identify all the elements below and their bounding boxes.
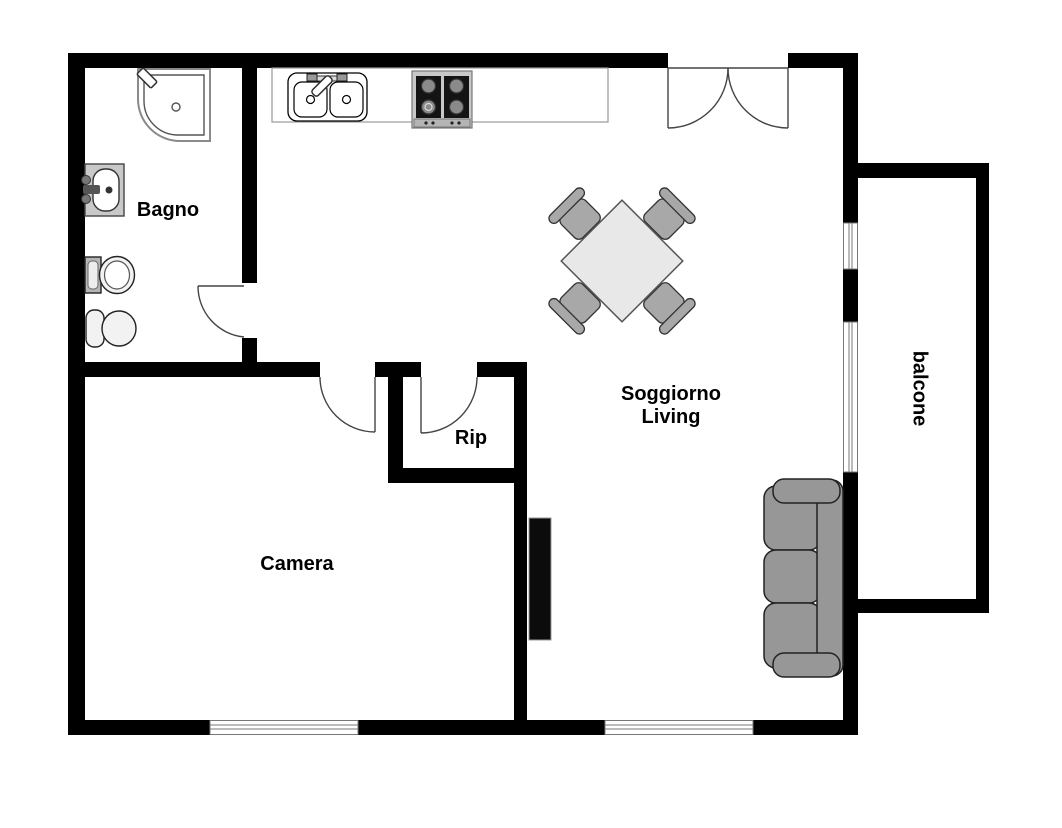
living-furniture: [529, 186, 843, 677]
soggiorno-window: [605, 721, 753, 735]
wall-rip-bottom: [388, 468, 527, 483]
burner: [422, 79, 436, 93]
balcony-window-small: [844, 223, 858, 269]
wall-top-left-segment: [68, 53, 668, 68]
bidet: [86, 310, 136, 347]
wall-balcony-top: [858, 163, 989, 178]
balcony-window-large: [844, 322, 858, 472]
burner: [450, 100, 464, 114]
sofa: [764, 479, 843, 677]
sofa-armrest: [773, 653, 840, 677]
kitchen-sink: [288, 73, 367, 121]
room-label-bagno: Bagno: [108, 199, 228, 222]
kitchen: [272, 68, 608, 128]
burner: [450, 79, 464, 93]
wall-divider: [514, 362, 527, 735]
sink-drain: [106, 187, 113, 194]
wall-left: [68, 53, 85, 735]
room-label-camera: Camera: [217, 553, 377, 576]
sofa-backrest: [817, 480, 843, 676]
faucet-handle: [307, 74, 317, 81]
sink-drain: [343, 96, 351, 104]
sofa-cushion: [764, 550, 821, 603]
faucet-knob: [82, 176, 91, 185]
room-label-soggiorno-line1: Soggiorno: [571, 383, 771, 406]
cabinet: [529, 518, 551, 640]
wall-rip-left: [388, 362, 403, 483]
stove-control-bar: [414, 119, 470, 127]
wall-bagno-camera: [68, 362, 320, 377]
wall-balcony-right: [976, 163, 989, 613]
stove-knob: [431, 121, 434, 124]
wall-balcony-bottom: [858, 599, 989, 613]
rip-door: [421, 377, 477, 433]
stove: [412, 71, 472, 128]
faucet-knob: [82, 195, 91, 204]
burner: [422, 100, 436, 114]
room-label-balcone: balcone: [908, 339, 931, 439]
wall-bathroom-lower: [242, 338, 257, 363]
shower-drain: [172, 103, 180, 111]
windows: [210, 223, 858, 735]
stove-knob: [424, 121, 427, 124]
room-label-soggiorno-line2: Living: [571, 406, 771, 429]
faucet-body: [83, 185, 100, 194]
entrance-double-door: [668, 68, 788, 128]
shower: [137, 68, 210, 141]
toilet: [85, 257, 135, 294]
camera-door: [320, 377, 375, 432]
bathroom-door: [198, 286, 244, 337]
stove-knob: [450, 121, 453, 124]
doors: [198, 68, 788, 433]
room-label-rip: Rip: [431, 427, 511, 450]
camera-window: [210, 721, 358, 735]
sink-drain: [307, 96, 315, 104]
room-label-soggiorno: Soggiorno Living: [571, 383, 771, 429]
sofa-armrest: [773, 479, 840, 503]
stove-knob: [457, 121, 460, 124]
wall-bathroom-upper: [242, 68, 257, 283]
faucet-handle: [337, 74, 347, 81]
floorplan: Bagno Soggiorno Living Rip Camera balcon…: [0, 0, 1062, 828]
floorplan-drawing: [0, 0, 1062, 828]
